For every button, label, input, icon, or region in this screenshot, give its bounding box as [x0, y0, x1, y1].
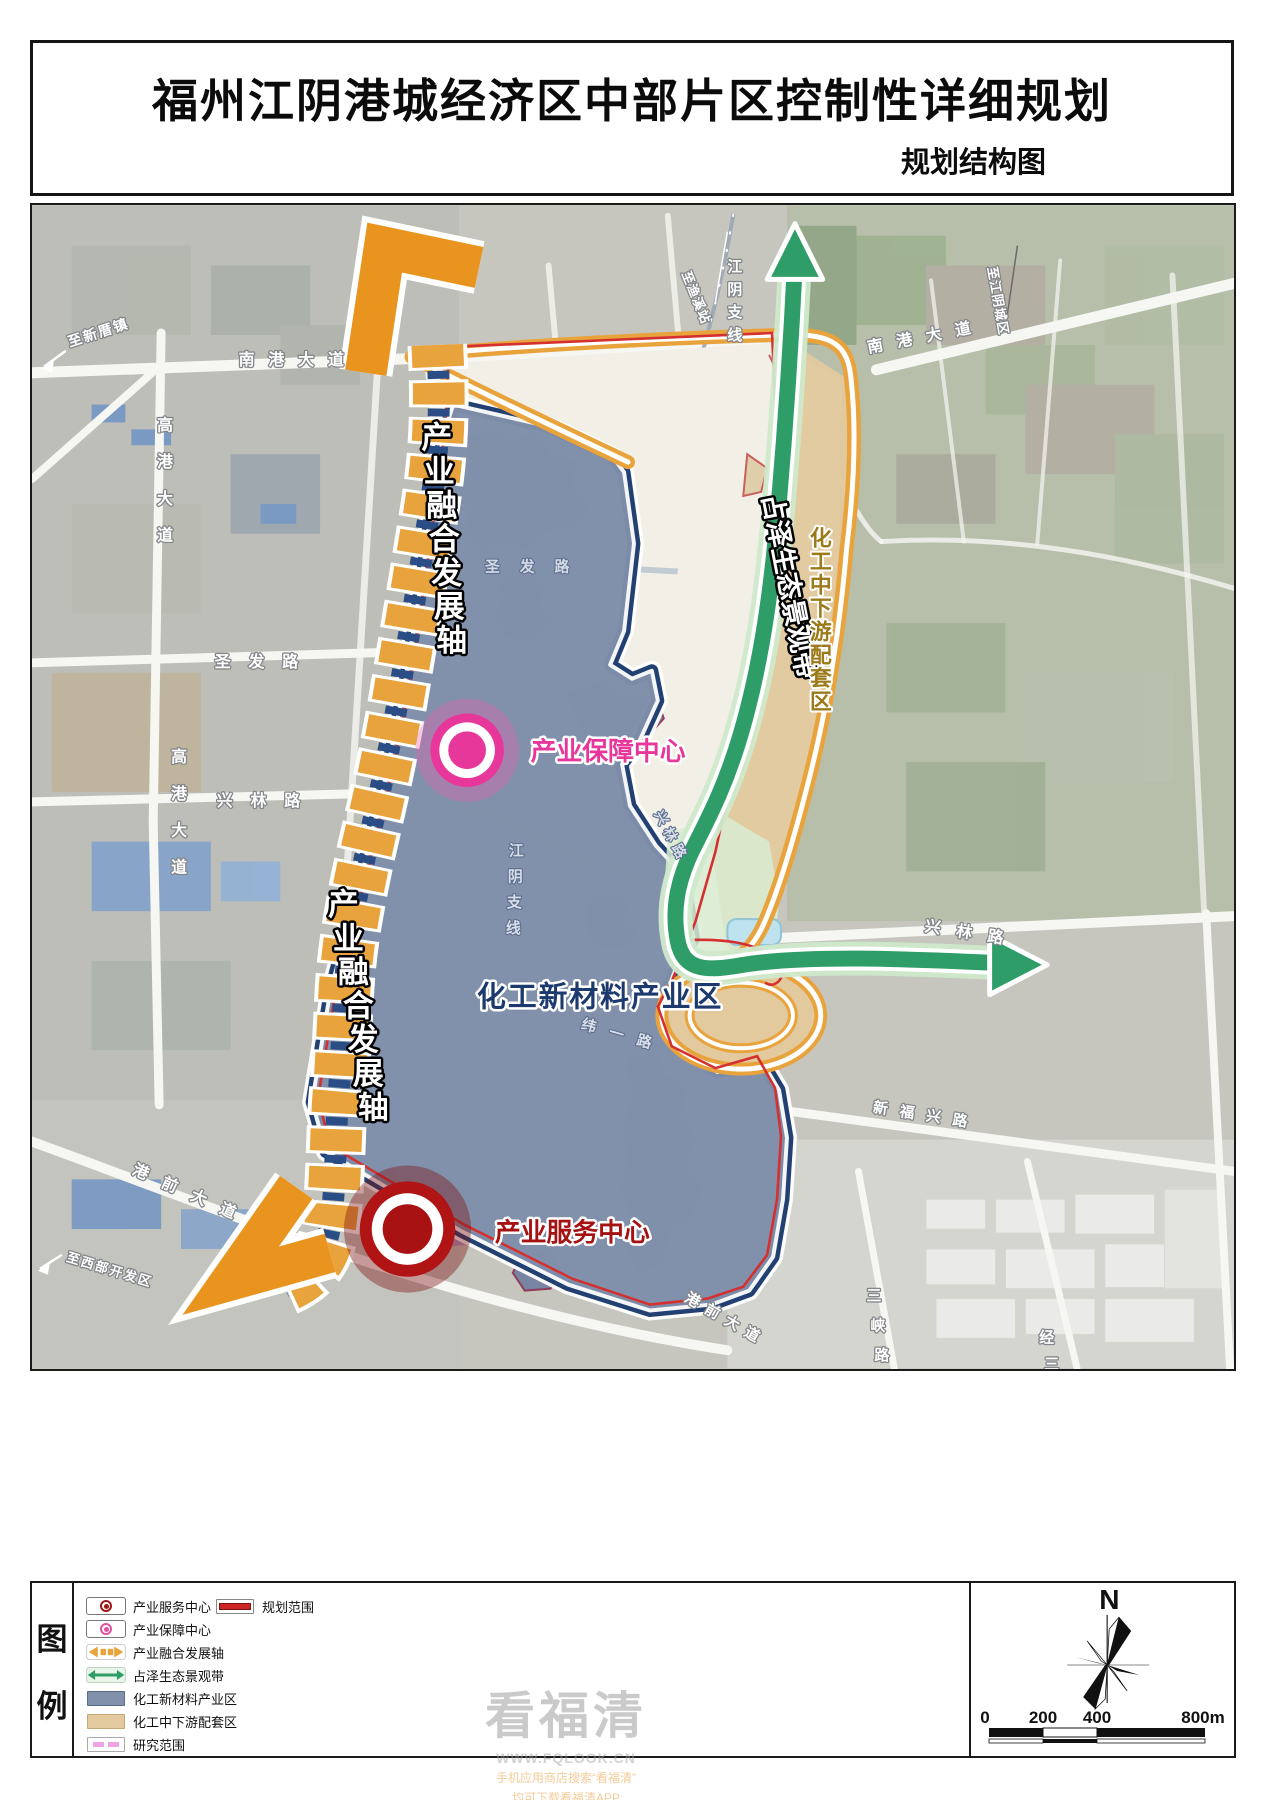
map-canvas: 至新厝镇 至渔溪站 至江阴城区 至西部开发区 南港大道 南港大道 高港大道 高港… — [32, 205, 1234, 1369]
label-zone-blue: 化工新材料产业区 — [477, 982, 723, 1014]
planning-boundary-icon — [216, 1599, 254, 1614]
page-subtitle: 规划结构图 — [33, 139, 1231, 181]
road-shengfa-w: 圣发路 — [215, 652, 316, 671]
map-frame: 至新厝镇 至渔溪站 至江阴城区 至西部开发区 南港大道 南港大道 高港大道 高港… — [30, 203, 1236, 1371]
road-shengfa-inner: 圣发路 — [484, 557, 589, 575]
legend-item-belt: 占泽生态景观带 — [86, 1664, 969, 1686]
north-label: N — [1099, 1584, 1119, 1615]
title-block: 福州江阴港城经济区中部片区控制性详细规划 规划结构图 — [30, 40, 1234, 196]
label-zone-tan: 化工中下游配套区 — [810, 526, 832, 714]
scale-200: 200 — [1029, 1708, 1057, 1727]
zone-blue-swatch — [87, 1691, 125, 1706]
support-center-icon — [86, 1620, 126, 1638]
legend-heading: 图 例 — [32, 1583, 74, 1756]
watermark-line2: 均可下载看福清APP — [456, 1789, 676, 1800]
label-center-support: 产业保障中心 — [531, 736, 686, 766]
service-center-icon — [86, 1597, 126, 1615]
legend-heading-char-2: 例 — [37, 1681, 68, 1726]
legend-item-zone-blue: 化工新材料产业区 — [86, 1687, 969, 1709]
scale-400: 400 — [1083, 1708, 1111, 1727]
scale-0: 0 — [980, 1708, 989, 1727]
legend-item-boundary: 规划范围 — [215, 1595, 314, 1617]
center-support-marker — [415, 699, 518, 802]
road-nangang-w: 南港大道 — [239, 350, 358, 369]
planning-map-page: 福州江阴港城经济区中部片区控制性详细规划 规划结构图 — [0, 0, 1270, 1800]
scale-800m: 800m — [1181, 1708, 1224, 1727]
watermark-line1: 手机应用商店搜索“看福清” — [456, 1769, 676, 1786]
legend-item-zone-tan: 化工中下游配套区 — [86, 1710, 969, 1732]
legend-item-support-center: 产业保障中心 — [86, 1618, 969, 1640]
label-center-service: 产业服务中心 — [495, 1218, 650, 1247]
north-scale-panel: N 0 200 400 800m — [969, 1583, 1234, 1756]
compass-rose: N — [1043, 1583, 1173, 1711]
legend-block: 图 例 产业服务中心 产业保障中心 — [30, 1581, 1236, 1758]
road-xinglin-w: 兴林路 — [217, 791, 318, 810]
legend-item-axis: 产业融合发展轴 — [86, 1641, 969, 1663]
legend-item-research: 研究范围 — [86, 1733, 969, 1755]
axis-icon — [86, 1643, 126, 1661]
legend-heading-char-1: 图 — [37, 1614, 68, 1659]
zone-tan-swatch — [87, 1714, 125, 1729]
legend-items: 产业服务中心 产业保障中心 产业融合发展轴 — [74, 1583, 969, 1756]
research-scope-icon — [87, 1737, 125, 1752]
center-service-marker — [344, 1165, 471, 1292]
eco-belt-icon — [86, 1666, 126, 1684]
scale-bar: 0 200 400 800m — [977, 1706, 1227, 1754]
page-title: 福州江阴港城经济区中部片区控制性详细规划 — [43, 65, 1221, 131]
